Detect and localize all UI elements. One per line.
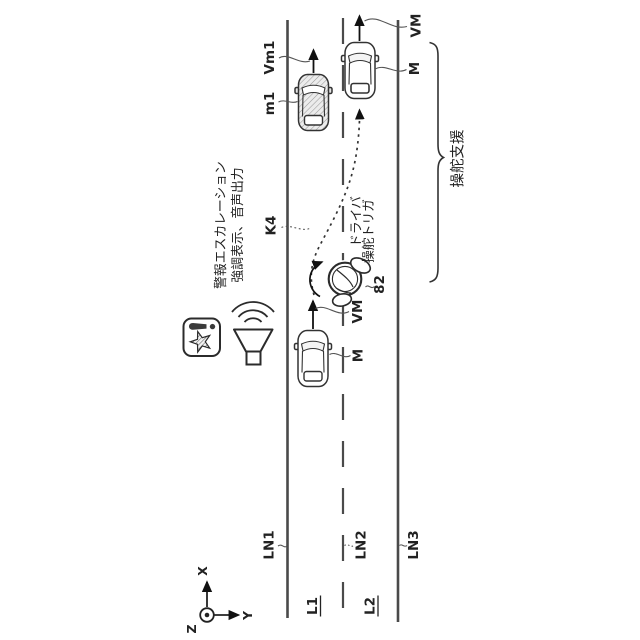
alert-display-icon [184,319,221,357]
leader-vm1 [279,56,310,61]
vehicle-m-before [295,331,332,387]
leader-vm-top [365,19,408,27]
label-m-mid: M [351,349,367,362]
label-82: 82 [372,275,388,294]
label-k4: K4 [264,216,280,236]
annotation-driver-trigger-line2: 操舵トリガ [361,199,377,263]
leader-ln1 [278,545,287,547]
label-l1: L1 [305,597,321,615]
exclamation-dot [210,324,215,329]
sound-wave-mid [239,310,268,317]
label-ln3: LN3 [406,530,422,559]
label-l2: L2 [363,597,379,615]
vehicle-m1 [295,75,332,131]
label-axis-x: X [195,566,210,576]
label-ln2: LN2 [354,530,370,559]
label-m-top: M [407,62,423,75]
m-after-rear-window [351,84,369,94]
speaker-icon [232,302,274,365]
label-m1: m1 [262,92,278,115]
label-axis-y: Y [240,610,255,621]
sound-wave-inner [245,318,262,322]
label-vm-top: VM [409,14,425,38]
leader-m-top [375,67,407,71]
exclamation-bar [189,323,207,330]
leader-k4 [282,226,310,229]
label-ln1: LN1 [262,530,278,559]
patent-figure-page: Vm1 m1 VM M K4 VM M 82 LN1 LN2 LN3 L1 L2… [0,0,640,640]
steering-support-brace [430,43,444,283]
annotation-alert-line1: 警報エスカレーション [213,161,229,289]
speaker-base [247,352,261,365]
leader-m-mid [330,353,351,356]
label-vm-mid: VM [350,300,366,324]
axis-z-dot [205,613,210,618]
label-axis-z: Z [184,624,199,633]
annotation-alert-line2: 強調表示、音声出力 [230,167,246,282]
m-before-rear-window [304,372,322,382]
m1-rear-window [305,116,323,126]
label-vm1: Vm1 [262,41,278,75]
speaker-cone [234,330,273,352]
coordinate-axes [200,582,238,622]
vehicle-m-after [342,43,379,99]
annotation-steering-support: 操舵支援 [450,129,467,187]
diagram-canvas: Vm1 m1 VM M K4 VM M 82 LN1 LN2 LN3 L1 L2… [0,0,640,640]
